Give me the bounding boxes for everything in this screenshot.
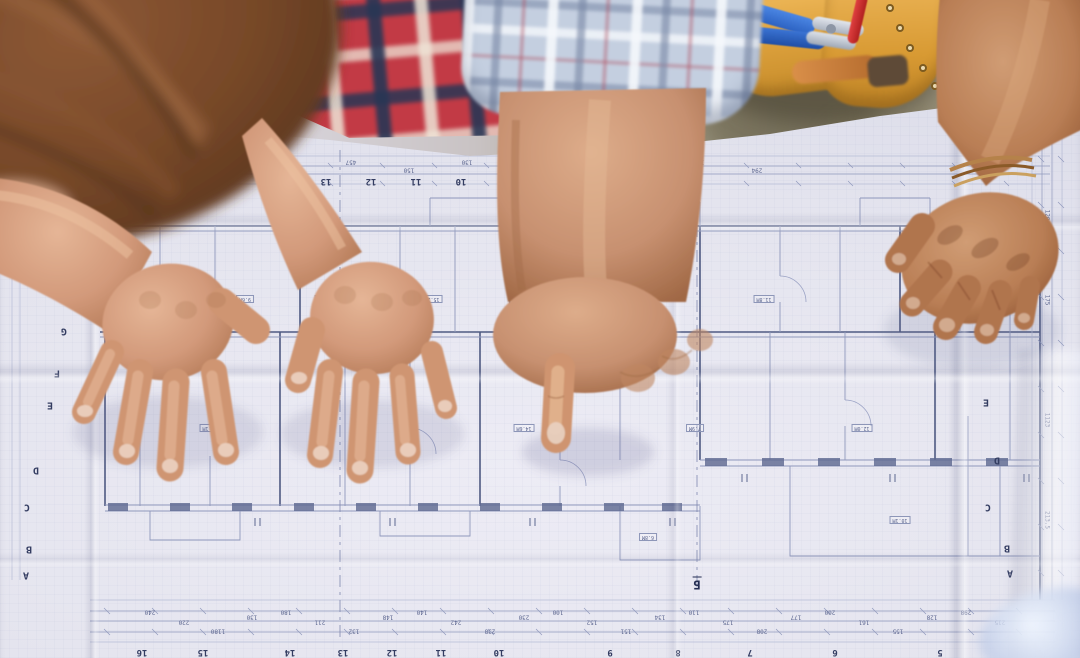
pointing-hand <box>493 277 713 444</box>
left-worker-arm-2 <box>242 118 362 290</box>
photo-canvas: HGFEDCBAEDCBA141312111098765161514131211… <box>0 0 1080 658</box>
pointing-index-finger <box>547 368 565 444</box>
fingernail <box>547 422 565 444</box>
pointing-arm <box>497 88 706 302</box>
